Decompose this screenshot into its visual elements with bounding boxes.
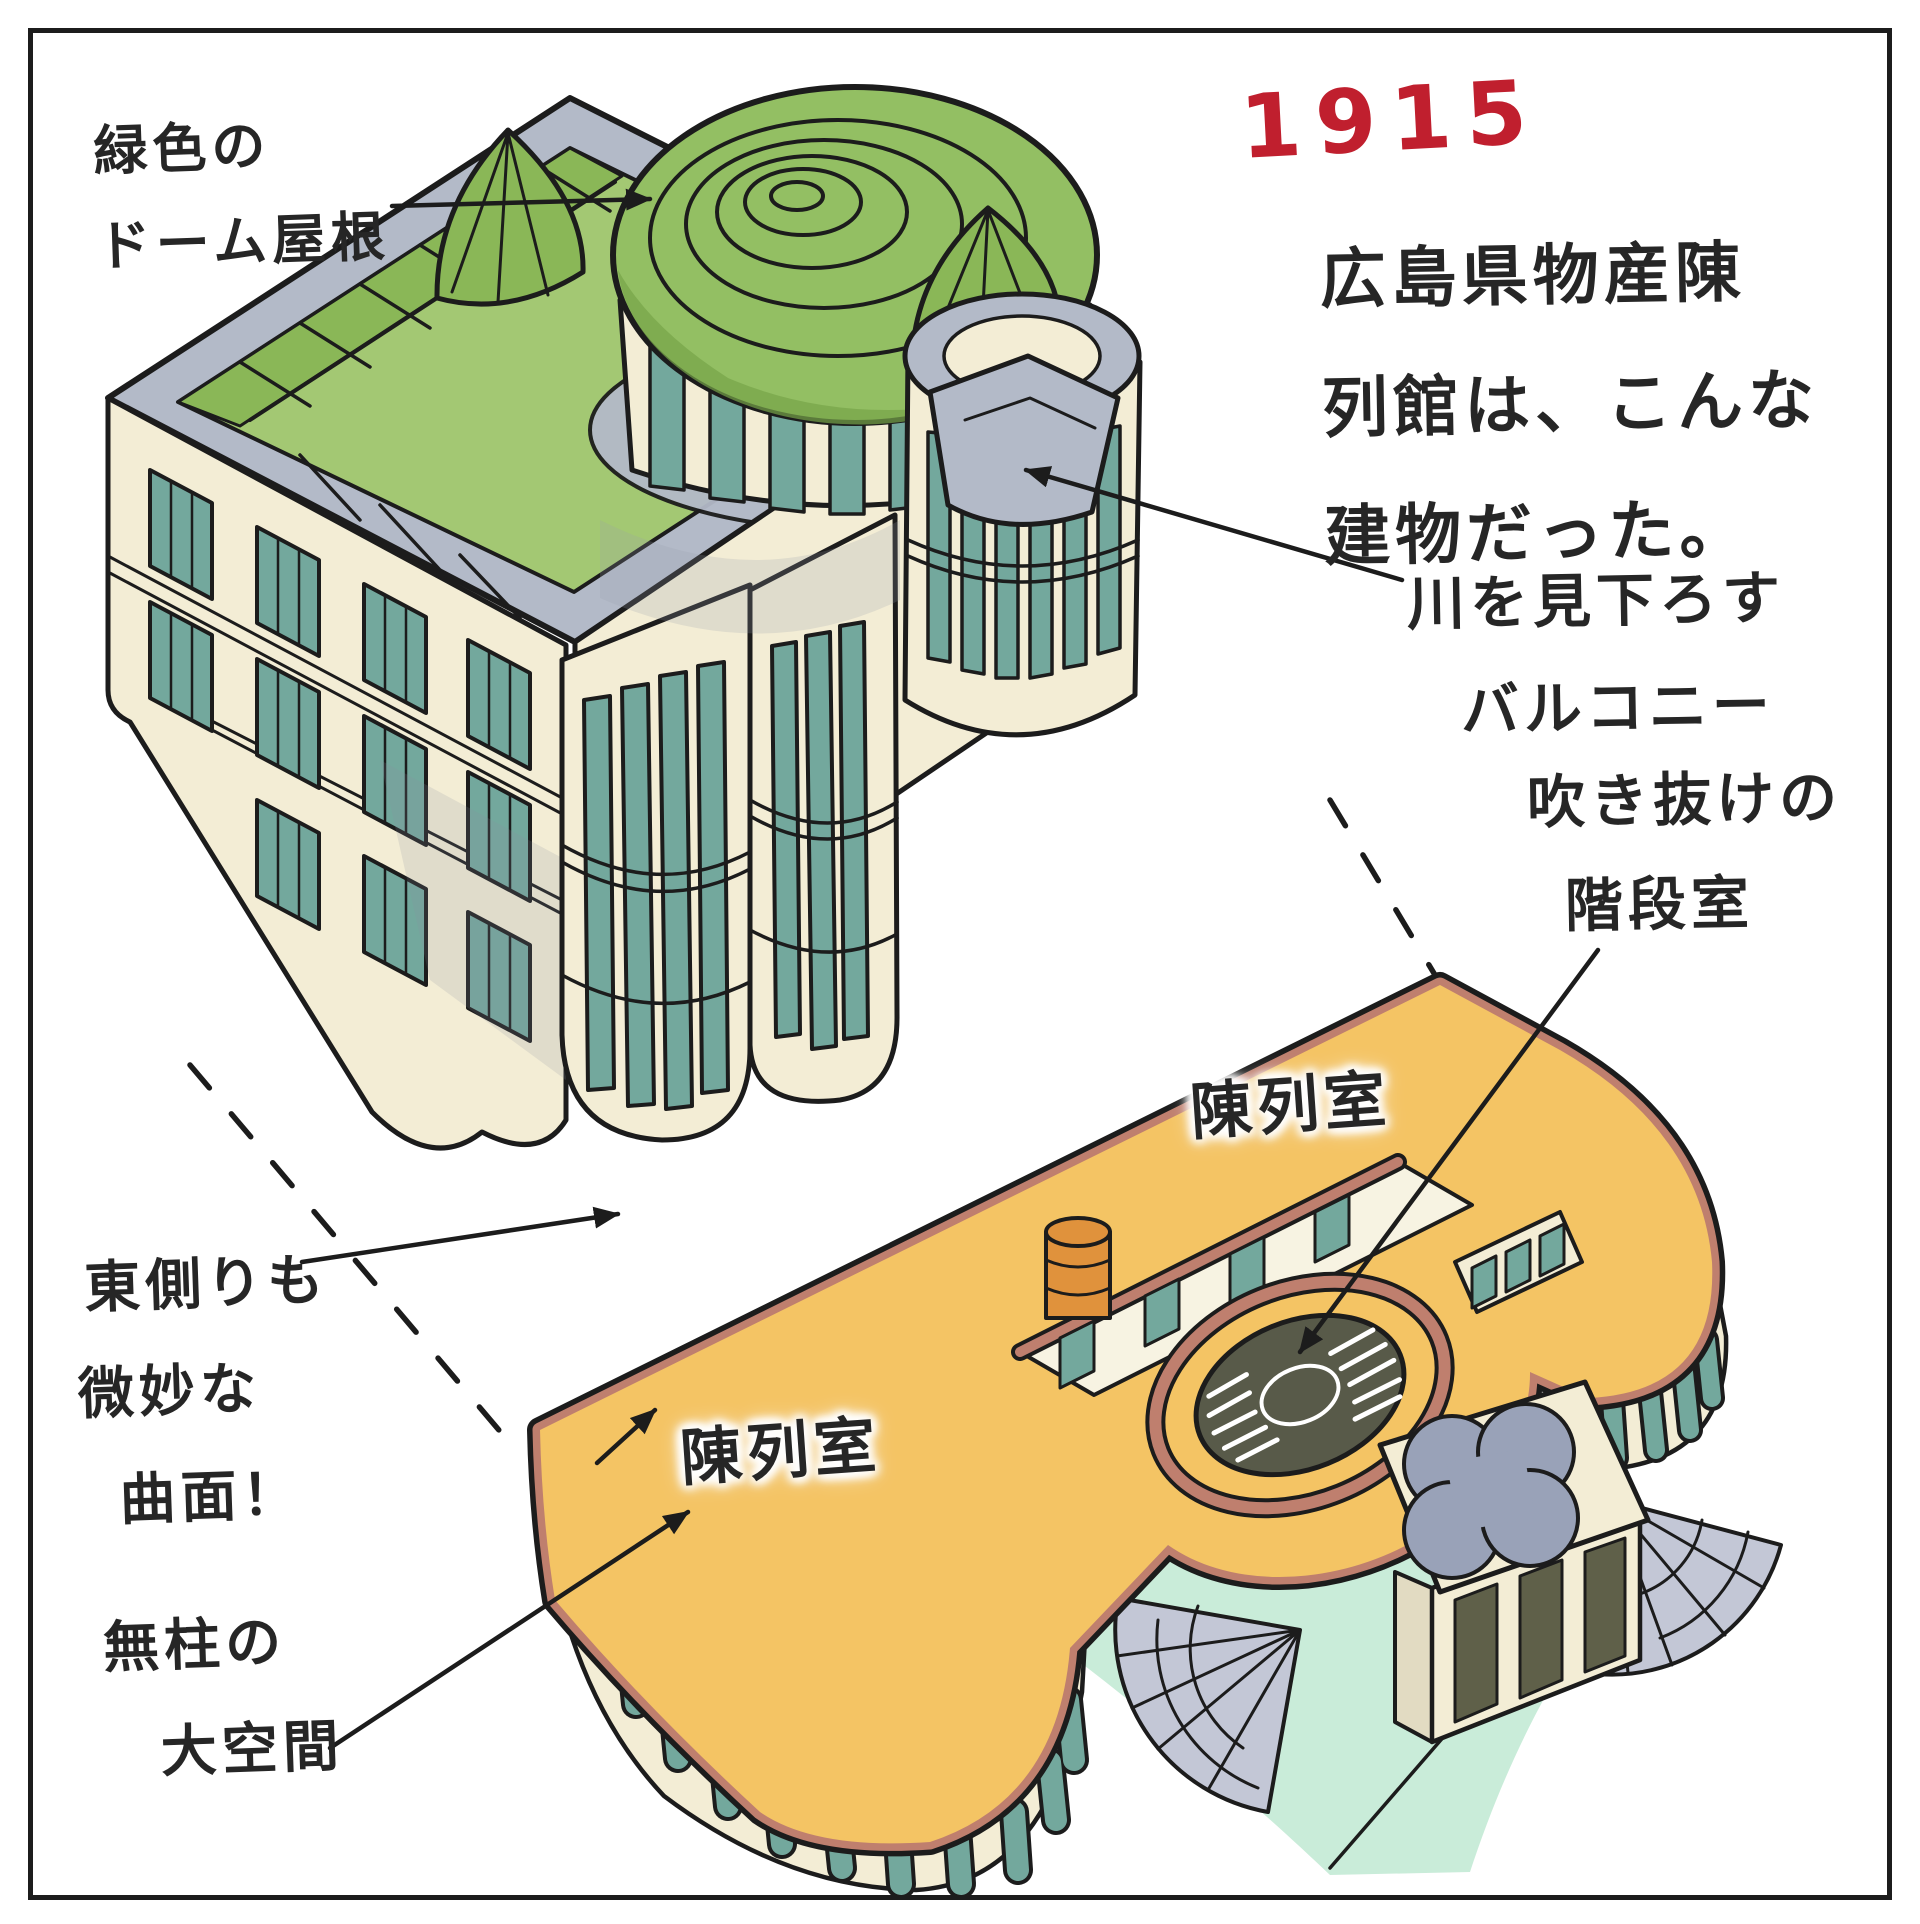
label-line: 緑色の: [92, 95, 389, 200]
label-line: 微妙な: [76, 1334, 334, 1449]
east-side-arrow: [302, 1214, 618, 1262]
exhibit-room-label-top: 陳列室: [1186, 1045, 1394, 1167]
exhibit-room-label-left: 陳列室: [676, 1391, 884, 1513]
label-line: 曲面！: [118, 1440, 338, 1554]
label-line: 大空間: [159, 1694, 346, 1807]
column-free-space-label: 無柱の 大空間: [101, 1588, 345, 1809]
green-dome-roof-label: 緑色の ドーム屋根: [92, 95, 392, 294]
label-line: 川を見下ろす: [1406, 545, 1786, 659]
fan-stairs-left: [1115, 1598, 1300, 1812]
intro-caption: 広島県物産陳 列館は、こんな 建物だった。: [1319, 208, 1823, 603]
label-line: 無柱の: [101, 1588, 342, 1703]
stairwell-label: 吹き抜けの 階段室: [1526, 745, 1845, 959]
quatrefoil-dome-footprint: [1404, 1404, 1578, 1578]
caption-line: 広島県物産陳: [1319, 208, 1818, 345]
east-side-label: 東側りも 微妙な 曲面！: [83, 1228, 338, 1555]
label-line: 陳列室: [1186, 1045, 1394, 1167]
caption-line: 列館は、こんな: [1321, 336, 1820, 473]
courtyard-cylinder: [1046, 1218, 1110, 1318]
label-line: 東側りも: [83, 1228, 331, 1343]
label-line: 階段室: [1564, 850, 1845, 959]
projection-dash-right: [1330, 800, 1435, 975]
label-line: 吹き抜けの: [1526, 745, 1843, 855]
label-line: 陳列室: [676, 1391, 884, 1513]
sketch-page: 1915 緑色の ドーム屋根 広島県物産陳 列館は、こんな 建物だった。 川を見…: [0, 0, 1920, 1924]
label-line: ドーム屋根: [95, 189, 392, 294]
year-label: 1915: [1238, 60, 1544, 179]
balcony-label: 川を見下ろす バルコニー: [1406, 545, 1788, 766]
